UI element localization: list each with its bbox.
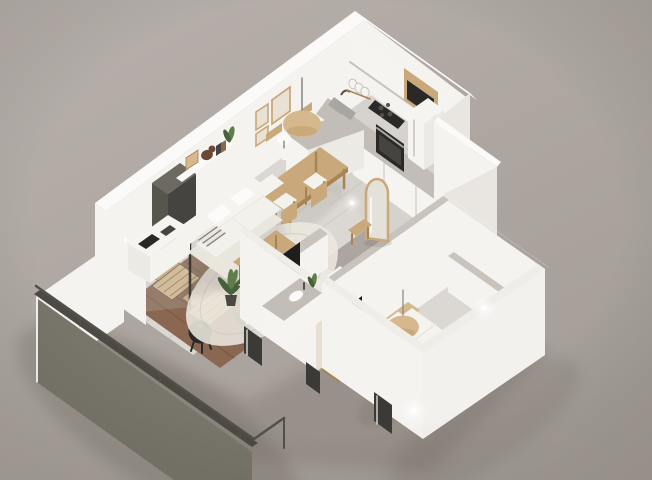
floor-plan-render xyxy=(0,0,652,480)
isometric-scene xyxy=(0,0,652,480)
vignette xyxy=(0,0,652,480)
